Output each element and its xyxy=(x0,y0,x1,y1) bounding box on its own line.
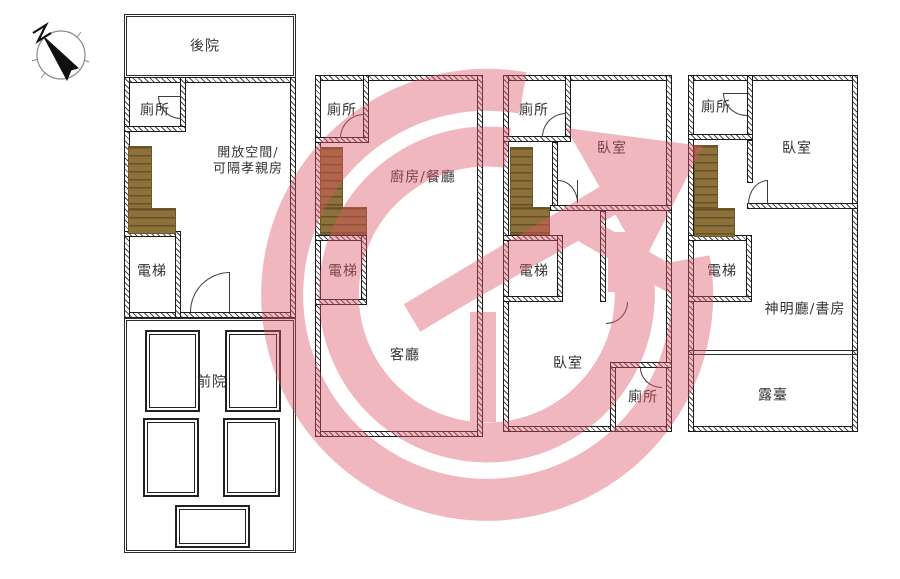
f3-bedroom-lower-label: 臥室 xyxy=(553,356,583,373)
wall xyxy=(503,75,509,432)
wall xyxy=(688,426,858,432)
f3-elevator-label: 電梯 xyxy=(519,264,549,281)
floorplan-canvas: 後院 廁所 開放空間/ 可隔孝親房 電梯 前院 廁所 廚房/餐廳 電梯 客廳 廁… xyxy=(0,0,900,579)
staircase xyxy=(694,208,735,237)
f4-elevator-label: 電梯 xyxy=(707,264,737,281)
wall xyxy=(315,299,367,305)
staircase xyxy=(694,145,718,208)
wall xyxy=(124,77,296,83)
floor-plan-4 xyxy=(688,75,858,432)
wall xyxy=(600,211,606,302)
wall xyxy=(503,426,672,432)
staircase xyxy=(510,147,533,209)
f3-toilet-lower-label: 廁所 xyxy=(628,390,658,407)
wall xyxy=(503,235,563,241)
north-compass-icon xyxy=(18,14,98,94)
wall xyxy=(688,296,752,302)
door-leaf xyxy=(158,96,181,97)
f4-bedroom-label: 臥室 xyxy=(782,141,812,158)
f2-toilet-label: 廁所 xyxy=(327,103,357,120)
wall xyxy=(557,235,563,302)
door-leaf xyxy=(229,272,230,312)
staircase xyxy=(128,146,152,210)
f4-shrine-label: 神明廳/書房 xyxy=(765,302,846,319)
wall xyxy=(852,75,858,432)
f3-bedroom-upper-label: 臥室 xyxy=(597,141,627,158)
north-n-glyph xyxy=(33,25,51,41)
wall xyxy=(550,205,672,211)
wall xyxy=(688,75,694,432)
wall xyxy=(747,140,753,183)
f4-toilet-label: 廁所 xyxy=(701,100,731,117)
f1-backyard-label: 後院 xyxy=(190,39,220,56)
f1-open-space-line1: 開放空間/ xyxy=(213,145,283,161)
f1-open-space-label: 開放空間/ 可隔孝親房 xyxy=(213,145,283,176)
wall xyxy=(503,296,563,302)
wall xyxy=(315,75,321,437)
staircase xyxy=(320,207,367,235)
f1-toilet-label: 廁所 xyxy=(140,103,170,120)
parking-space xyxy=(223,418,280,497)
f4-terrace-label: 露臺 xyxy=(758,388,788,405)
parking-space xyxy=(143,418,199,497)
wall xyxy=(747,75,753,140)
wall xyxy=(688,75,858,81)
f2-living-label: 客廳 xyxy=(390,348,420,365)
parking-space xyxy=(225,330,281,412)
f1-elevator-label: 電梯 xyxy=(137,264,167,281)
f1-frontyard-label: 前院 xyxy=(197,375,227,392)
staircase xyxy=(128,208,176,234)
parking-space xyxy=(145,330,200,412)
wall xyxy=(315,75,483,81)
wall xyxy=(315,235,367,241)
staircase xyxy=(320,147,343,209)
north-arrow-icon xyxy=(44,37,78,80)
terrace-divider xyxy=(688,350,858,355)
wall xyxy=(124,126,186,132)
door-leaf xyxy=(723,93,747,94)
wall xyxy=(666,75,672,432)
wall xyxy=(124,312,296,318)
wall xyxy=(315,431,483,437)
wall xyxy=(175,231,181,318)
floor-plan-2 xyxy=(315,75,483,437)
staircase xyxy=(510,207,550,235)
wall xyxy=(746,235,752,302)
wall xyxy=(477,75,483,437)
wall xyxy=(503,75,672,81)
wall xyxy=(610,362,616,432)
wall xyxy=(688,134,753,140)
f2-elevator-label: 電梯 xyxy=(328,264,358,281)
f2-kitchen-label: 廚房/餐廳 xyxy=(390,170,456,187)
parking-space xyxy=(175,505,250,548)
f1-open-space-line2: 可隔孝親房 xyxy=(213,161,283,177)
wall xyxy=(361,235,367,305)
wall xyxy=(290,77,296,318)
door-leaf xyxy=(577,180,578,203)
f3-toilet-upper-label: 廁所 xyxy=(519,103,549,120)
door-leaf xyxy=(767,180,768,204)
